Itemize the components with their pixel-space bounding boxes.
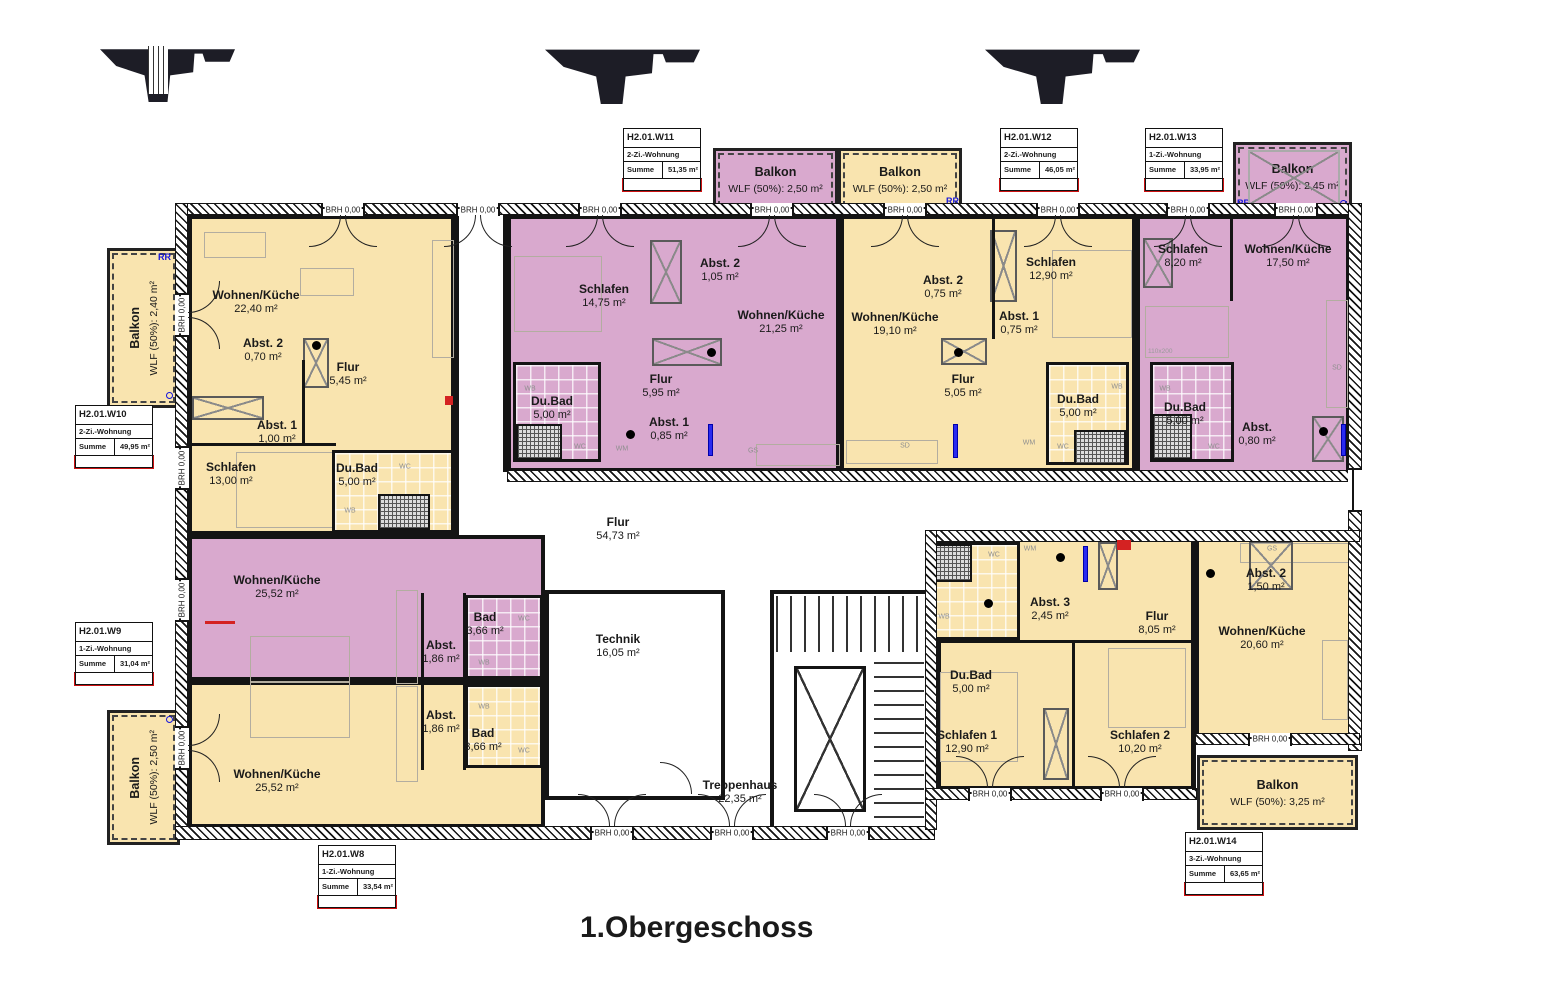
- brh-label: BRH 0,00: [1278, 206, 1315, 215]
- furniture: [1322, 640, 1348, 720]
- closet: [1098, 542, 1118, 590]
- room-label-w13-wohnen: Wohnen/Küche17,50 m²: [1244, 242, 1331, 271]
- marker-dot: [1319, 427, 1328, 436]
- room-label-w11-abst1: Abst. 10,85 m²: [649, 415, 689, 444]
- technik-room: [545, 590, 725, 800]
- wall: [925, 530, 937, 830]
- apartment-id: H2.01.W11: [624, 129, 700, 148]
- apartment-id: H2.01.W10: [76, 406, 152, 425]
- balcony-label: Balkon: [879, 165, 921, 179]
- marker-dot: [626, 430, 635, 439]
- balcony-label: Balkon: [755, 165, 797, 179]
- bed-w14-schlafen2: [1108, 648, 1186, 728]
- brh-label: BRH 0,00: [1170, 206, 1207, 215]
- apartment-type: 1-Zi.-Wohnung: [319, 865, 395, 880]
- wc-fixture-label: WC: [988, 552, 1000, 559]
- balcony-w8: Balkon WLF (50%): 2,50 m²: [107, 710, 180, 845]
- wall: [925, 788, 1197, 800]
- brh-label: BRH 0,00: [325, 206, 362, 215]
- brh-label: BRH 0,00: [594, 829, 631, 838]
- room-label-w10-dubad: Du.Bad5,00 m²: [336, 461, 378, 490]
- sd-fixture-label: SD: [1332, 365, 1342, 372]
- window-element: [953, 424, 958, 458]
- wall: [1192, 745, 1196, 790]
- kitchen-w11: [756, 444, 840, 466]
- kitchen-w10: [432, 240, 454, 358]
- kitchen-w12: [846, 440, 938, 464]
- balcony-label: Balkon: [128, 757, 142, 799]
- bed-w9: [250, 636, 350, 682]
- apartment-info-w12: H2.01.W12 2-Zi.-Wohnung Summe46,05 m²: [1000, 128, 1078, 191]
- room-label-technik: Technik16,05 m²: [596, 632, 640, 661]
- marker-dot: [984, 599, 993, 608]
- room-label-w14-schlafen1: Schlafen 112,90 m²: [937, 728, 997, 757]
- brh-label: BRH 0,00: [178, 730, 187, 767]
- brh-label: BRH 0,00: [178, 450, 187, 487]
- balcony-label: Balkon: [1257, 778, 1299, 792]
- apartment-info-w14: H2.01.W14 3-Zi.-Wohnung Summe63,65 m²: [1185, 832, 1263, 895]
- shower: [378, 494, 430, 530]
- bed-size-label: 110x200: [1148, 348, 1172, 355]
- wc-fixture-label: WC: [1208, 444, 1220, 451]
- brh-label: BRH 0,00: [1252, 735, 1289, 744]
- room-label-w11-flur: Flur5,95 m²: [642, 372, 679, 401]
- room-label-w10-abst1: Abst. 11,00 m²: [257, 418, 297, 447]
- room-label-w14-dubad: Du.Bad5,00 m²: [950, 668, 992, 697]
- apartment-id: H2.01.W12: [1001, 129, 1077, 148]
- room-label-w8-bad: Bad3,66 m²: [464, 726, 501, 755]
- brh-label: BRH 0,00: [972, 790, 1009, 799]
- shower: [934, 544, 972, 582]
- apartment-type: 2-Zi.-Wohnung: [624, 148, 700, 163]
- brh-label: BRH 0,00: [830, 829, 867, 838]
- furniture: [300, 268, 354, 296]
- furniture: [204, 232, 266, 258]
- balcony-wlf-label: WLF (50%): 2,50 m²: [853, 183, 948, 195]
- apartment-type: 2-Zi.-Wohnung: [1001, 148, 1077, 163]
- closet: [192, 396, 264, 420]
- apartment-type: 3-Zi.-Wohnung: [1186, 852, 1262, 867]
- room-label-w14-abst2: Abst. 21,50 m²: [1246, 566, 1286, 595]
- apartment-type: 1-Zi.-Wohnung: [76, 642, 152, 657]
- room-label-treppenhaus: Treppenhaus22,35 m²: [703, 778, 778, 807]
- room-label-w9-abst: Abst.1,86 m²: [422, 638, 459, 667]
- apartment-id: H2.01.W9: [76, 623, 152, 642]
- brh-label: BRH 0,00: [1104, 790, 1141, 799]
- tree-blob: [545, 40, 700, 104]
- room-label-w13-schlafen: Schlafen8,20 m²: [1158, 242, 1208, 271]
- brh-label: BRH 0,00: [178, 297, 187, 334]
- wall: [455, 215, 459, 537]
- wall: [937, 640, 1195, 643]
- room-label-w11-wohnen: Wohnen/Küche21,25 m²: [737, 308, 824, 337]
- room-label-w10-flur: Flur5,45 m²: [329, 360, 366, 389]
- room-label-w12-wohnen: Wohnen/Küche19,10 m²: [851, 310, 938, 339]
- wb-fixture-label: WB: [478, 660, 489, 667]
- wc-fixture-label: WC: [518, 616, 530, 623]
- apartment-id: H2.01.W14: [1186, 833, 1262, 852]
- apartment-id: H2.01.W8: [319, 846, 395, 865]
- wall: [421, 593, 424, 681]
- brh-label: BRH 0,00: [178, 582, 187, 619]
- wall: [1072, 643, 1075, 788]
- wb-fixture-label: WB: [1111, 384, 1122, 391]
- brh-label: BRH 0,00: [460, 206, 497, 215]
- room-label-w13-abst: Abst.0,80 m²: [1238, 420, 1275, 449]
- drawing-title: 1.Obergeschoss: [580, 911, 813, 945]
- room-label-w14-abst3: Abst. 32,45 m²: [1030, 595, 1070, 624]
- kitchen-w8: [396, 686, 418, 782]
- closet: [650, 240, 682, 304]
- room-label-w13-dubad: Du.Bad5,00 m²: [1164, 400, 1206, 429]
- blue-dot: [166, 392, 173, 399]
- room-label-w8-abst: Abst.1,86 m²: [422, 708, 459, 737]
- marker-dot: [312, 341, 321, 350]
- wall: [925, 530, 1360, 542]
- apartment-info-w11: H2.01.W11 2-Zi.-Wohnung Summe51,35 m²: [623, 128, 701, 191]
- room-label-w11-dubad: Du.Bad5,00 m²: [531, 394, 573, 423]
- closet: [941, 338, 987, 365]
- info-red-row: [317, 895, 396, 909]
- wb-fixture-label: WB: [478, 704, 489, 711]
- wall: [1230, 215, 1233, 301]
- info-red-row: [74, 455, 153, 469]
- wall: [507, 470, 1350, 482]
- apartment-info-w13: H2.01.W13 1-Zi.-Wohnung Summe33,95 m²: [1145, 128, 1223, 191]
- apartment-info-w8: H2.01.W8 1-Zi.-Wohnung Summe33,54 m²: [318, 845, 396, 908]
- room-label-w14-flur: Flur8,05 m²: [1138, 609, 1175, 638]
- marker-dot: [1206, 569, 1215, 578]
- balcony-wlf-label: WLF (50%): 2,50 m²: [728, 183, 823, 195]
- room-label-w14-wohnen: Wohnen/Küche20,60 m²: [1218, 624, 1305, 653]
- wc-fixture-label: WC: [574, 444, 586, 451]
- room-label-w11-abst2: Abst. 21,05 m²: [700, 256, 740, 285]
- elevator: [794, 666, 866, 812]
- room-label-w9-bad: Bad3,66 m²: [466, 610, 503, 639]
- room-label-flur-common: Flur54,73 m²: [596, 515, 639, 544]
- wb-fixture-label: WB: [1159, 386, 1170, 393]
- kitchen-w9: [396, 590, 418, 684]
- apartment-type: 1-Zi.-Wohnung: [1146, 148, 1222, 163]
- apartment-type: 2-Zi.-Wohnung: [76, 425, 152, 440]
- blue-dot: [166, 716, 173, 723]
- room-label-w11-schlafen: Schlafen14,75 m²: [579, 282, 629, 311]
- wb-fixture-label: WB: [524, 386, 535, 393]
- window-element: [1083, 546, 1088, 582]
- window-element: [708, 424, 713, 456]
- window: [1348, 468, 1362, 512]
- brh-label: BRH 0,00: [887, 206, 924, 215]
- gs-fixture-label: GS: [748, 448, 758, 455]
- sd-fixture-label: SD: [900, 443, 910, 450]
- brh-label: BRH 0,00: [582, 206, 619, 215]
- brh-label: BRH 0,00: [1040, 206, 1077, 215]
- kitchen-w13: [1326, 300, 1348, 408]
- red-mark: [445, 396, 453, 405]
- floor-plan: Balkon WLF (50%): 2,40 m² RR Balkon WLF …: [0, 0, 1555, 996]
- wall: [503, 215, 507, 472]
- brh-label: BRH 0,00: [754, 206, 791, 215]
- balcony-wlf-label: WLF (50%): 3,25 m²: [1230, 796, 1325, 808]
- red-mark: [1117, 540, 1131, 550]
- balcony-wlf-label: WLF (50%): 2,40 m²: [148, 281, 160, 376]
- room-label-w12-flur: Flur5,05 m²: [944, 372, 981, 401]
- balcony-w10: Balkon WLF (50%): 2,40 m²: [107, 248, 180, 408]
- rr-label: RR: [158, 252, 171, 262]
- room-label-w9-wohnen: Wohnen/Küche25,52 m²: [233, 573, 320, 602]
- balcony-wlf-label: WLF (50%): 2,50 m²: [148, 730, 160, 825]
- wc-fixture-label: WC: [518, 748, 530, 755]
- apartment-info-w10: H2.01.W10 2-Zi.-Wohnung Summe49,95 m²: [75, 405, 153, 468]
- door-arc: [480, 215, 512, 247]
- door-arc: [444, 215, 476, 247]
- tree-blob-detail: [148, 46, 168, 94]
- room-label-w12-schlafen: Schlafen12,90 m²: [1026, 255, 1076, 284]
- gs-fixture-label: GS: [1267, 546, 1277, 553]
- room-label-w12-abst2: Abst. 20,75 m²: [923, 273, 963, 302]
- balcony-label: Balkon: [128, 307, 142, 349]
- wc-fixture-label: WC: [1057, 444, 1069, 451]
- red-mark: [205, 621, 235, 624]
- marker-dot: [1056, 553, 1065, 562]
- balcony-w14: Balkon WLF (50%): 3,25 m²: [1197, 755, 1358, 830]
- room-label-w14-schlafen2: Schlafen 210,20 m²: [1110, 728, 1170, 757]
- info-red-row: [999, 178, 1078, 192]
- wm-fixture-label: WM: [1023, 440, 1035, 447]
- info-red-row: [1144, 178, 1223, 192]
- marker-dot: [954, 348, 963, 357]
- room-label-w8-wohnen: Wohnen/Küche25,52 m²: [233, 767, 320, 796]
- wc-fixture-label: WC: [399, 464, 411, 471]
- room-label-w10-schlafen: Schlafen13,00 m²: [206, 460, 256, 489]
- wall: [302, 360, 305, 444]
- room-label-w12-abst1: Abst. 10,75 m²: [999, 309, 1039, 338]
- apartment-info-w9: H2.01.W9 1-Zi.-Wohnung Summe31,04 m²: [75, 622, 153, 685]
- brh-label: BRH 0,00: [714, 829, 751, 838]
- tree-blob: [985, 40, 1140, 104]
- info-red-row: [74, 672, 153, 686]
- room-label-w10-abst2: Abst. 20,70 m²: [243, 336, 283, 365]
- apartment-id: H2.01.W13: [1146, 129, 1222, 148]
- wall: [992, 215, 995, 339]
- wm-fixture-label: WM: [1024, 546, 1036, 553]
- info-red-row: [1184, 882, 1263, 896]
- wb-fixture-label: WB: [344, 508, 355, 515]
- bed-w8: [250, 682, 350, 738]
- info-red-row: [622, 178, 701, 192]
- room-label-w12-dubad: Du.Bad5,00 m²: [1057, 392, 1099, 421]
- wall: [175, 826, 935, 840]
- closet: [1312, 416, 1344, 462]
- shower: [516, 424, 562, 460]
- marker-dot: [707, 348, 716, 357]
- wb-fixture-label: WB: [938, 614, 949, 621]
- stairs-upper-flight: [776, 596, 924, 652]
- wm-fixture-label: WM: [616, 446, 628, 453]
- window-element: [1341, 424, 1346, 456]
- balcony-cross: [1248, 150, 1340, 206]
- shower: [1074, 430, 1126, 465]
- room-label-w10-wohnen: Wohnen/Küche22,40 m²: [212, 288, 299, 317]
- closet: [1043, 708, 1069, 780]
